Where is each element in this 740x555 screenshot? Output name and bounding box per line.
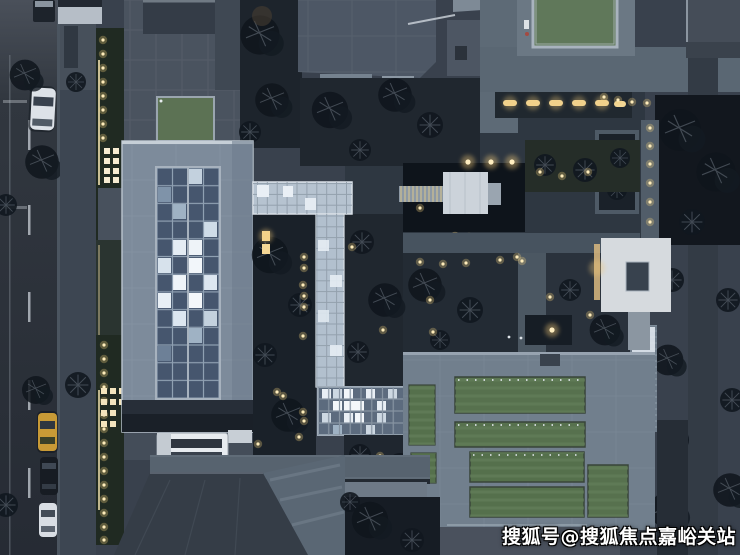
sidewalk <box>58 0 102 555</box>
small-green-roof <box>157 97 214 141</box>
hedge-light-strip <box>96 28 124 545</box>
mid-planter <box>525 140 640 192</box>
top-right-building <box>686 0 740 42</box>
road-edge-line <box>9 55 11 555</box>
bottom-structures <box>114 455 440 555</box>
white-car-bottom <box>39 503 57 537</box>
pond-pavilion <box>399 163 525 241</box>
street <box>0 0 62 555</box>
lit-wall <box>641 120 659 240</box>
left-building <box>122 97 253 474</box>
yellow-taxi <box>37 411 58 453</box>
skylight-room <box>318 387 404 435</box>
aerial-photo: 搜狐号@搜狐焦点嘉峪关站 <box>0 0 740 555</box>
aerial-photo-scene <box>0 0 740 555</box>
black-car <box>40 457 58 495</box>
watermark: 搜狐号@搜狐焦点嘉峪关站 <box>502 522 736 549</box>
dark-van-top <box>33 0 55 22</box>
white-car <box>28 85 56 132</box>
green-pool-roof <box>533 0 617 47</box>
